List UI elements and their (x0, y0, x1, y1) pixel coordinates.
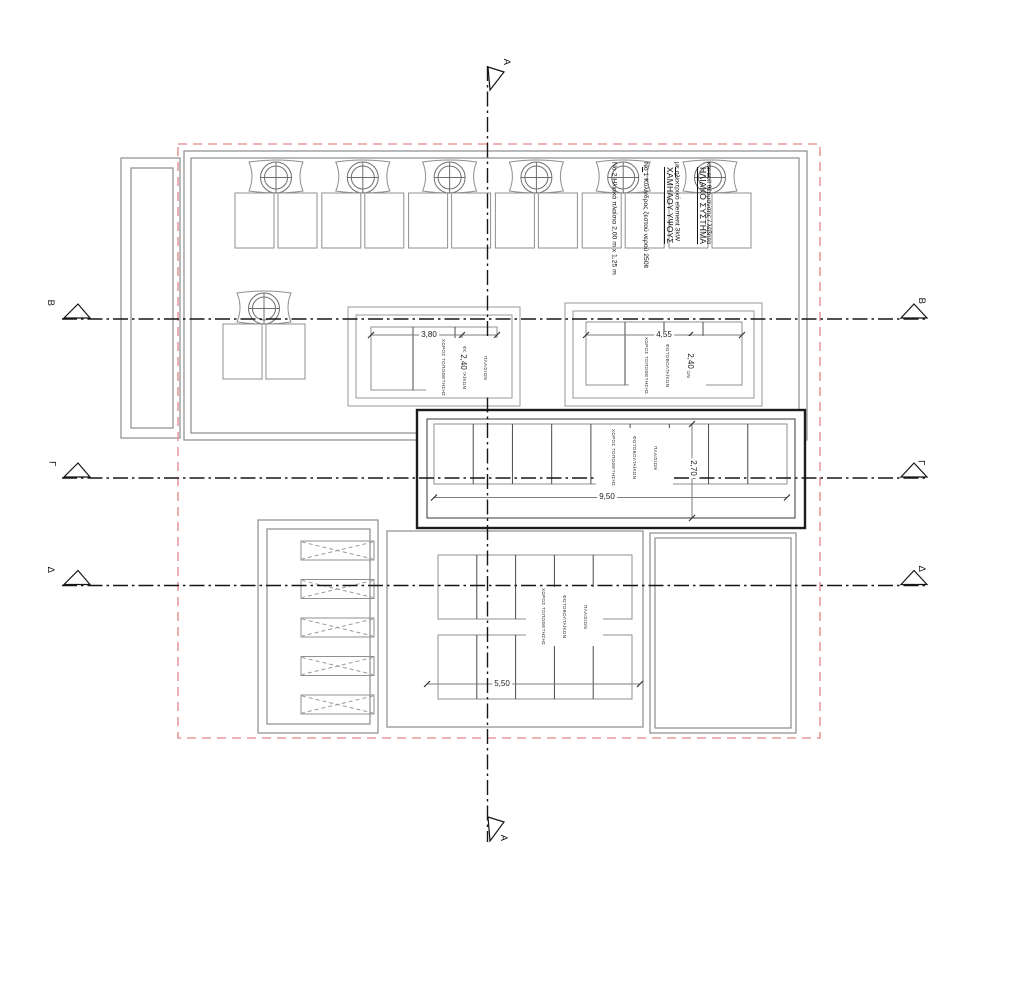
section-letter-gamma-left: Γ (47, 461, 57, 466)
section-arrow-b-right (901, 304, 927, 318)
section-letter-a-bottom: A (498, 835, 508, 841)
section-arrow-b-left (64, 304, 90, 318)
section-letter-b-left: B (45, 300, 55, 306)
lower-middle-wall (387, 531, 643, 727)
solar-unit (409, 160, 491, 248)
louver-bars (301, 541, 374, 714)
lower-right-inner-wall (655, 538, 791, 728)
section-arrow-delta-right (901, 571, 927, 585)
collector-panel (409, 193, 448, 248)
roof-plan-drawing: Νο 2 Ηλιακά πλαίσια 2,00 m x 1,25 m Νο 1… (0, 0, 1026, 981)
annex-outer-wall (121, 158, 180, 438)
solar-note-title-line: ΗΛΙΑΚΟ ΣΥΣΤΗΜΑ (697, 167, 708, 244)
dim-line-5-50 (424, 681, 643, 687)
collector-panel (278, 193, 317, 248)
dim-pv-mid-height: 2,70 (689, 458, 697, 478)
louver-bar (301, 618, 374, 637)
collector-panel (322, 193, 361, 248)
dim-pv-right-width: 4,55 (654, 331, 674, 339)
collector-panel (538, 193, 577, 248)
solar-unit (495, 160, 577, 248)
louver-bar (301, 541, 374, 560)
solar-note-title: ΗΛΙΑΚΟ ΣΥΣΤΗΜΑ ΧΑΜΗΛΟΥ ΥΨΟΥΣ (642, 167, 730, 244)
dim-pv-lower-width: 5,50 (492, 680, 512, 688)
collector-panel (235, 193, 274, 248)
drawing-geometry (0, 0, 1026, 981)
dim-pv-mid-width: 9,50 (597, 493, 617, 501)
lower-left-outer-wall (258, 520, 378, 733)
solar-note-title-line: ΧΑΜΗΛΟΥ ΥΨΟΥΣ (664, 167, 675, 244)
section-arrow-delta-left (64, 571, 90, 585)
dim-pv-right-height: 2,40 (686, 351, 694, 371)
collector-panel (365, 193, 404, 248)
louver-bar (301, 657, 374, 676)
solar-note-line: Νο 2 Ηλιακά πλαίσια 2,00 m x 1,25 m (608, 162, 619, 275)
section-arrow-a-top (488, 67, 504, 90)
section-arrow-gamma-left (64, 463, 90, 477)
annex-inner-wall (131, 168, 173, 428)
solar-unit (235, 160, 317, 248)
pv-lower-label: ΧΩΡΟΣ ΤΟΠΟΘΕΤΗΣΗΣ ΦΩΤΟΒΟΛΤΑΪΚΩΝ ΠΛΑΙΣΙΩΝ (526, 587, 603, 646)
dim-pv-left-height: 2,40 (459, 352, 467, 372)
section-letter-delta-right: Δ (916, 566, 926, 572)
section-letter-gamma-right: Γ (916, 460, 926, 465)
collector-panel (266, 324, 305, 379)
pv-middle-label: ΧΩΡΟΣ ΤΟΠΟΘΕΤΗΣΗΣ ΦΩΤΟΒΟΛΤΑΪΚΩΝ ΠΛΑΙΣΙΩΝ (596, 428, 673, 487)
section-letter-b-right: B (916, 298, 926, 304)
collector-panel (495, 193, 534, 248)
section-letter-a-top: A (501, 59, 511, 65)
lower-right-outer-wall (650, 533, 796, 733)
collector-panel (223, 324, 262, 379)
dim-pv-left-width: 3,80 (419, 331, 439, 339)
section-letter-delta-left: Δ (45, 567, 55, 573)
solar-unit (223, 291, 305, 379)
solar-unit (322, 160, 404, 248)
louver-bar (301, 580, 374, 599)
louver-bar (301, 695, 374, 714)
collector-panel (452, 193, 491, 248)
